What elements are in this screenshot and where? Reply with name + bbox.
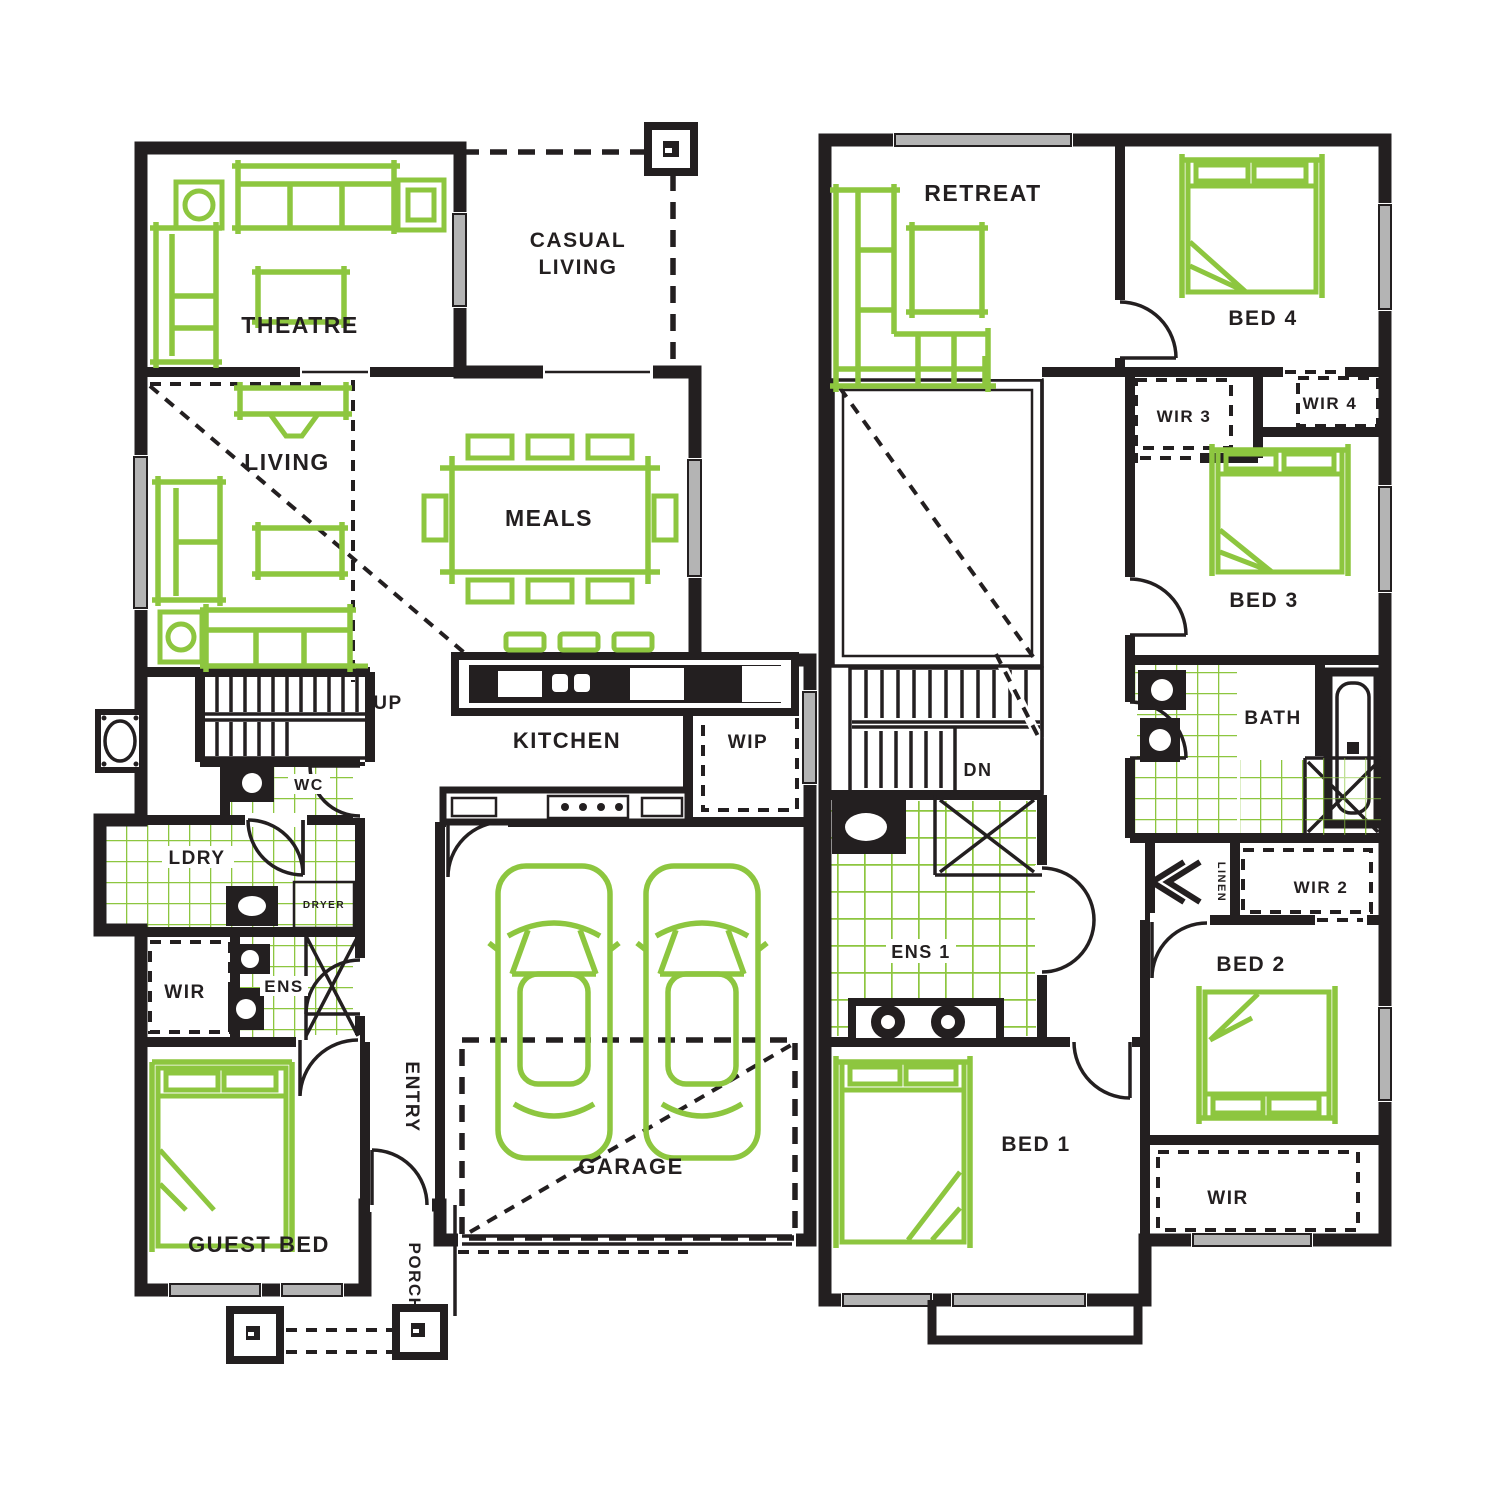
kitchen-island <box>455 656 795 712</box>
label-bed2: BED 2 <box>1216 953 1285 976</box>
car <box>637 866 767 1158</box>
label-wir-ground: WIR <box>164 982 205 1003</box>
window <box>1377 1006 1393 1102</box>
label-casual-line2: LIVING <box>538 256 617 279</box>
label-wir-upper: WIR <box>1207 1188 1248 1209</box>
bed3-furniture <box>1210 444 1350 576</box>
label-entry: ENTRY <box>401 1061 422 1132</box>
label-kitchen: KITCHEN <box>513 728 621 753</box>
upper-stairs <box>850 654 1042 792</box>
garage-cars <box>489 866 767 1158</box>
window <box>802 690 818 785</box>
label-garage: GARAGE <box>578 1154 684 1179</box>
label-wir4: WIR 4 <box>1303 394 1358 413</box>
window <box>452 212 468 308</box>
window <box>1191 1232 1313 1248</box>
label-dn: DN <box>964 760 993 780</box>
post-marker <box>648 126 694 172</box>
linen-arrow-icon <box>1152 862 1200 902</box>
label-ens-ground: ENS <box>264 977 303 996</box>
ground-floor: THEATRE CASUAL LIVING LIVING MEALS KITCH… <box>98 126 818 1360</box>
label-up: UP <box>373 693 402 714</box>
window <box>168 1282 262 1298</box>
label-wir3: WIR 3 <box>1157 407 1212 426</box>
label-theatre: THEATRE <box>241 312 358 338</box>
window <box>133 455 149 610</box>
window <box>893 132 1073 148</box>
label-wc: WC <box>294 777 324 794</box>
label-wip: WIP <box>728 732 768 753</box>
ground-stairs <box>203 674 370 758</box>
label-living: LIVING <box>244 449 330 475</box>
label-bed4: BED 4 <box>1228 307 1297 330</box>
car <box>489 866 619 1158</box>
label-bath: BATH <box>1244 708 1301 729</box>
label-bed3: BED 3 <box>1229 589 1298 612</box>
label-linen: LINEN <box>1215 862 1227 903</box>
label-retreat: RETREAT <box>924 180 1041 206</box>
window <box>280 1282 344 1298</box>
label-meals: MEALS <box>505 505 593 531</box>
window <box>1377 485 1393 593</box>
bed4-furniture <box>1180 154 1324 298</box>
label-ens1: ENS 1 <box>891 942 951 962</box>
label-dryer: DRYER <box>303 900 345 911</box>
window <box>687 458 703 578</box>
window <box>1377 203 1393 311</box>
upper-floor: RETREAT BED 4 WIR 3 WIR 4 BED 3 BATH DN … <box>825 132 1393 1340</box>
bed1-furniture <box>834 1056 972 1248</box>
bed2-furniture <box>1197 986 1337 1124</box>
kitchen-bench <box>443 790 688 822</box>
void-outline <box>833 380 1042 666</box>
bar-stools <box>506 634 652 650</box>
window <box>841 1292 933 1308</box>
guest-bed-furniture <box>152 1062 292 1252</box>
window <box>951 1292 1087 1308</box>
living-furniture <box>152 382 356 672</box>
label-ldry: LDRY <box>168 848 225 869</box>
label-wir2: WIR 2 <box>1294 878 1349 897</box>
floor-plan-svg: THEATRE CASUAL LIVING LIVING MEALS KITCH… <box>0 0 1500 1500</box>
label-porch: PORCH <box>405 1243 424 1312</box>
label-bed1: BED 1 <box>1001 1133 1070 1156</box>
label-guest-bed: GUEST BED <box>188 1232 330 1257</box>
label-casual-line1: CASUAL <box>530 229 627 252</box>
retreat-furniture <box>830 184 996 392</box>
floor-plan: THEATRE CASUAL LIVING LIVING MEALS KITCH… <box>0 0 1500 1500</box>
wc-basin <box>230 764 274 802</box>
hws-unit <box>98 712 142 770</box>
